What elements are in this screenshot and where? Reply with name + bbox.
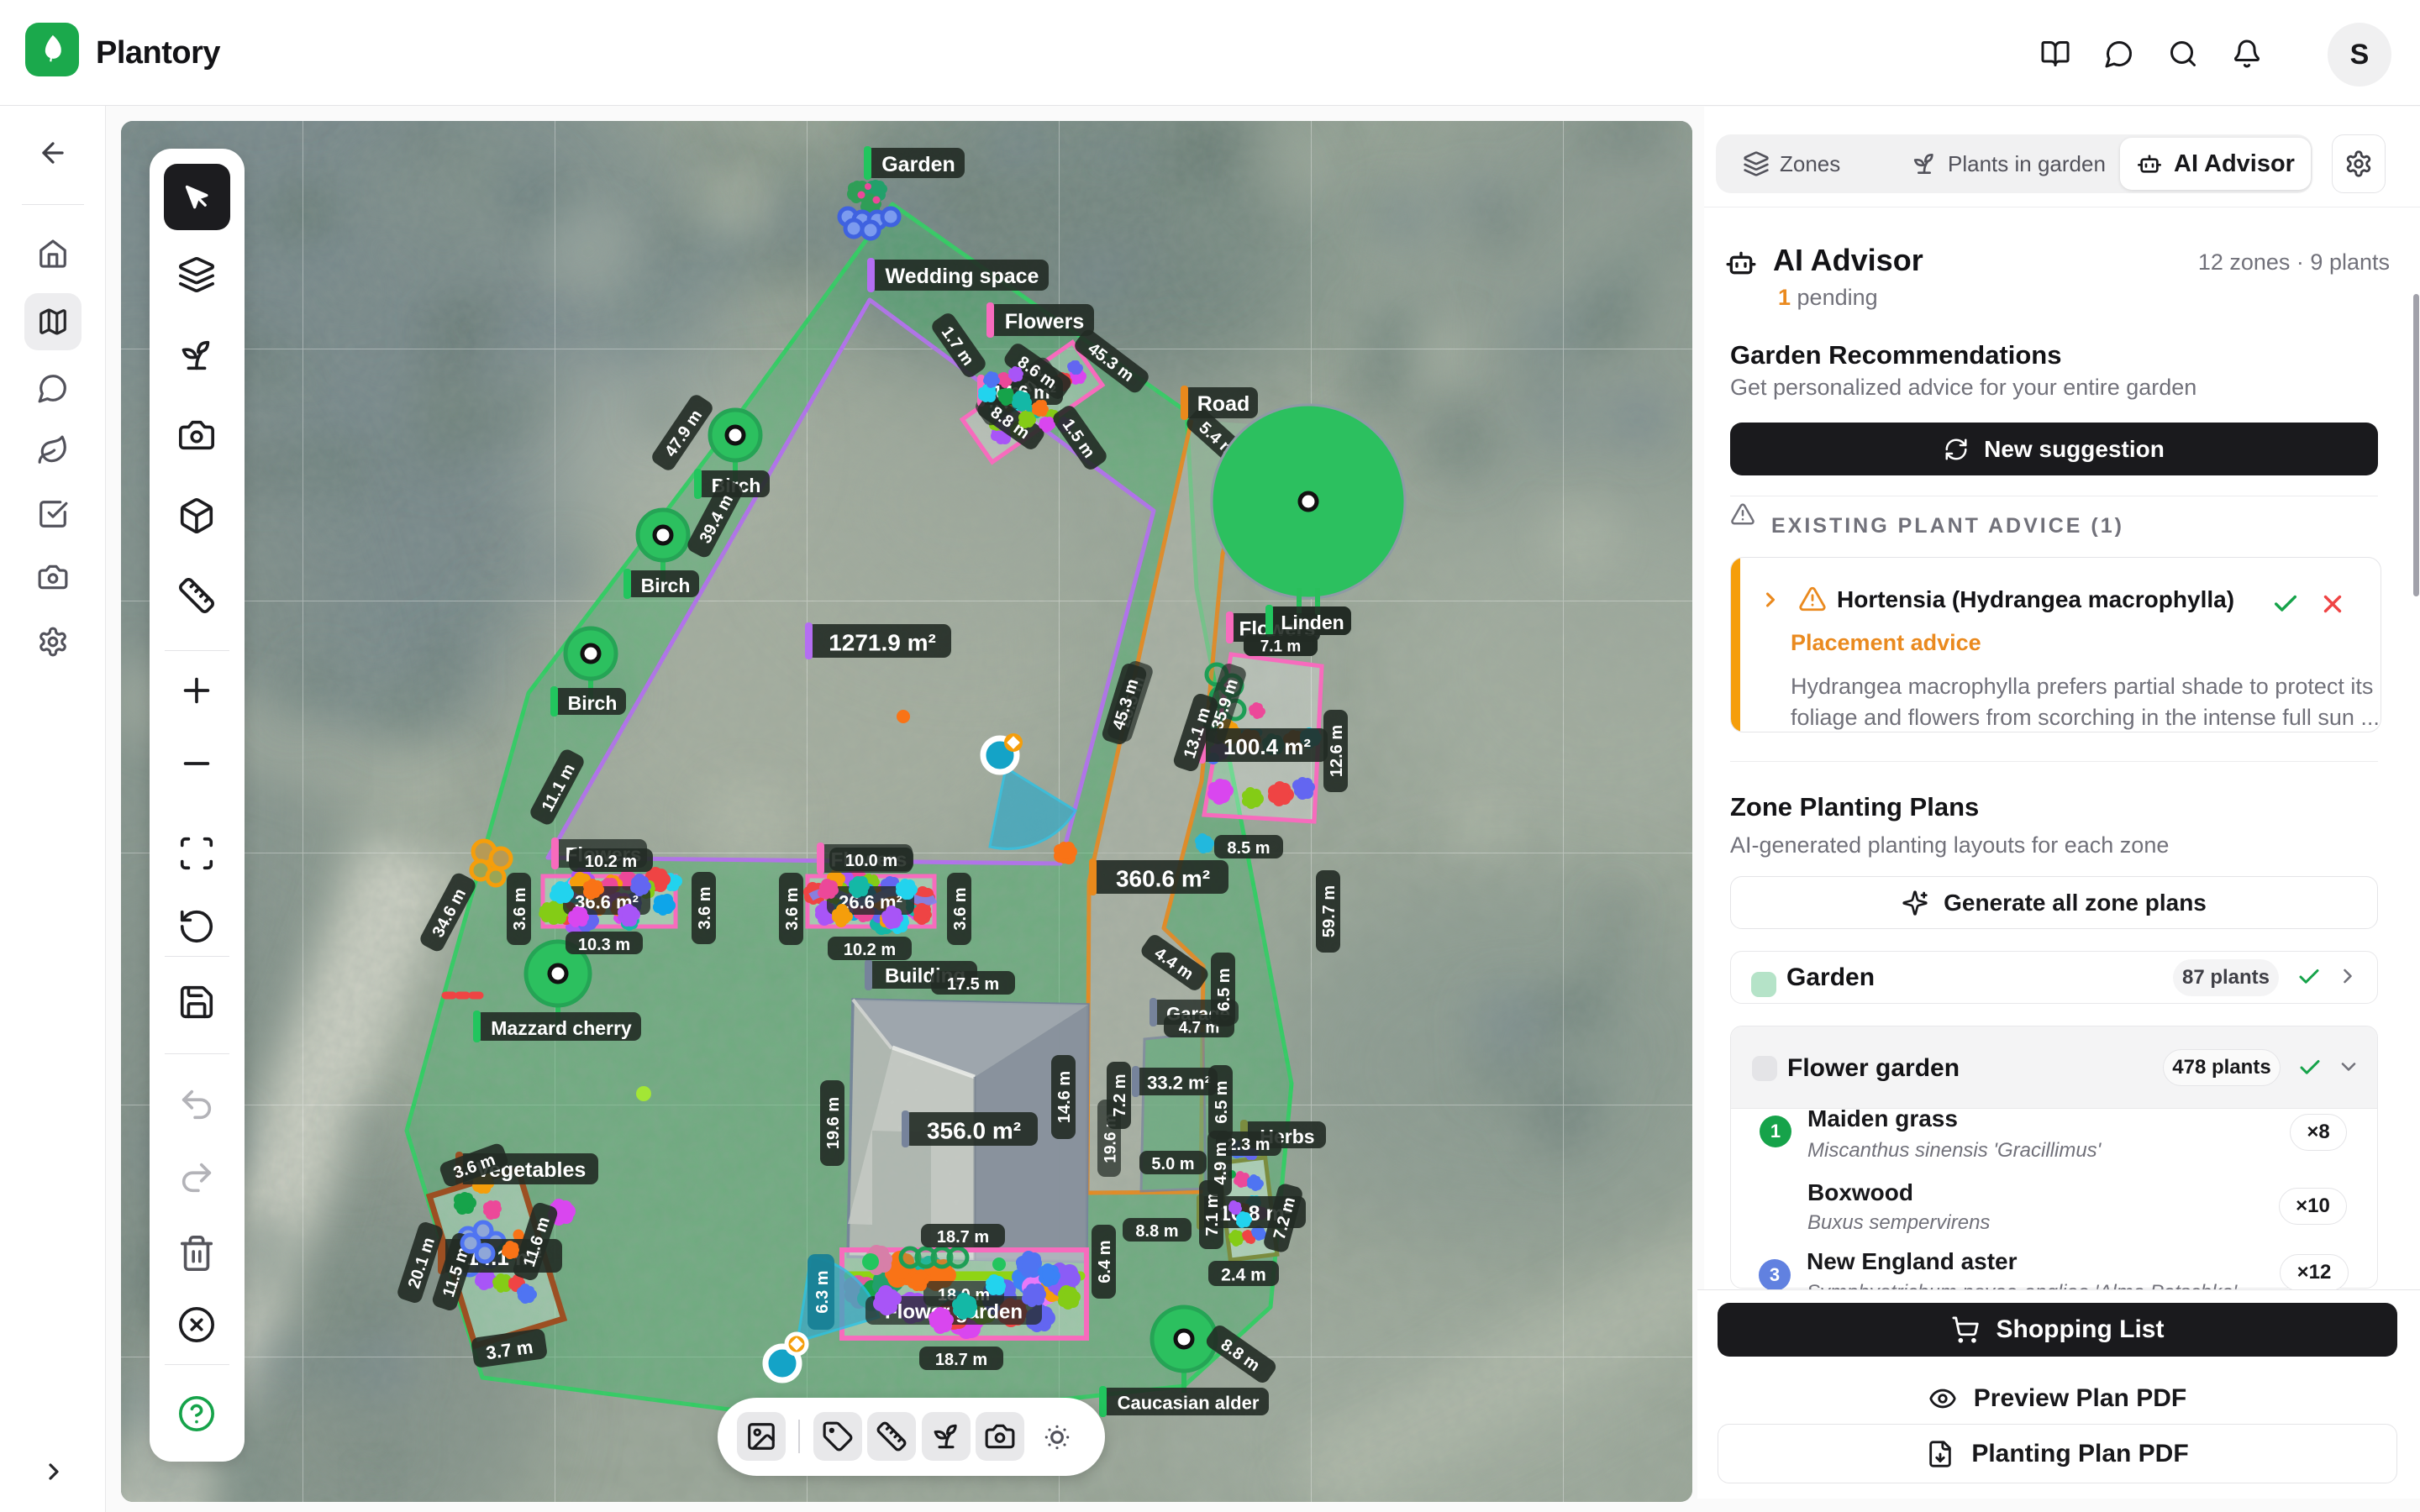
- svg-text:3.6 m: 3.6 m: [951, 887, 970, 930]
- svg-text:6.5 m: 6.5 m: [1215, 968, 1234, 1011]
- svg-text:360.6 m²: 360.6 m²: [1116, 866, 1210, 892]
- svg-text:6.3 m: 6.3 m: [813, 1270, 832, 1313]
- svg-text:4.9 m: 4.9 m: [1212, 1142, 1230, 1184]
- svg-text:6.5 m: 6.5 m: [1213, 1080, 1231, 1123]
- svg-text:Birch: Birch: [641, 575, 691, 596]
- svg-text:7.1 m: 7.1 m: [1260, 638, 1302, 656]
- svg-text:10.0 m: 10.0 m: [845, 852, 897, 870]
- svg-text:3.6 m: 3.6 m: [696, 886, 714, 929]
- svg-text:5.0 m: 5.0 m: [1151, 1155, 1194, 1173]
- svg-text:7.1 m: 7.1 m: [1203, 1193, 1222, 1236]
- svg-text:19.6 m: 19.6 m: [824, 1097, 843, 1149]
- svg-text:3.6 m: 3.6 m: [511, 887, 529, 930]
- svg-text:356.0 m²: 356.0 m²: [927, 1118, 1021, 1144]
- svg-text:10.3 m: 10.3 m: [578, 936, 630, 954]
- svg-text:Birch: Birch: [568, 692, 618, 714]
- svg-text:Linden: Linden: [1281, 612, 1344, 633]
- svg-text:6.4 m: 6.4 m: [1096, 1240, 1114, 1283]
- svg-text:12.6 m: 12.6 m: [1328, 725, 1346, 777]
- svg-text:100.4 m²: 100.4 m²: [1223, 734, 1311, 759]
- svg-text:33.2 m²: 33.2 m²: [1147, 1073, 1211, 1094]
- svg-text:17.5 m: 17.5 m: [947, 975, 999, 994]
- svg-text:Caucasian alder: Caucasian alder: [1118, 1393, 1260, 1414]
- svg-text:3.6 m: 3.6 m: [783, 887, 802, 930]
- svg-text:18.7 m: 18.7 m: [937, 1228, 989, 1247]
- svg-text:Road: Road: [1197, 392, 1250, 416]
- svg-text:8.5 m: 8.5 m: [1227, 839, 1270, 858]
- svg-text:2.3 m: 2.3 m: [1227, 1136, 1270, 1154]
- svg-text:Garden: Garden: [881, 153, 955, 176]
- svg-text:Mazzard cherry: Mazzard cherry: [491, 1017, 632, 1039]
- svg-text:10.2 m: 10.2 m: [844, 941, 896, 959]
- svg-text:Flowers: Flowers: [1005, 310, 1084, 333]
- svg-text:Wedding space: Wedding space: [886, 265, 1039, 288]
- svg-text:10.2 m: 10.2 m: [585, 853, 637, 871]
- svg-text:8.8 m: 8.8 m: [1135, 1222, 1178, 1241]
- svg-text:59.7 m: 59.7 m: [1320, 885, 1339, 937]
- svg-text:18.7 m: 18.7 m: [935, 1351, 987, 1369]
- svg-text:2.4 m: 2.4 m: [1221, 1266, 1266, 1285]
- svg-text:7.2 m: 7.2 m: [1111, 1074, 1129, 1116]
- svg-text:14.6 m: 14.6 m: [1055, 1071, 1074, 1123]
- svg-text:1271.9 m²: 1271.9 m²: [829, 630, 936, 656]
